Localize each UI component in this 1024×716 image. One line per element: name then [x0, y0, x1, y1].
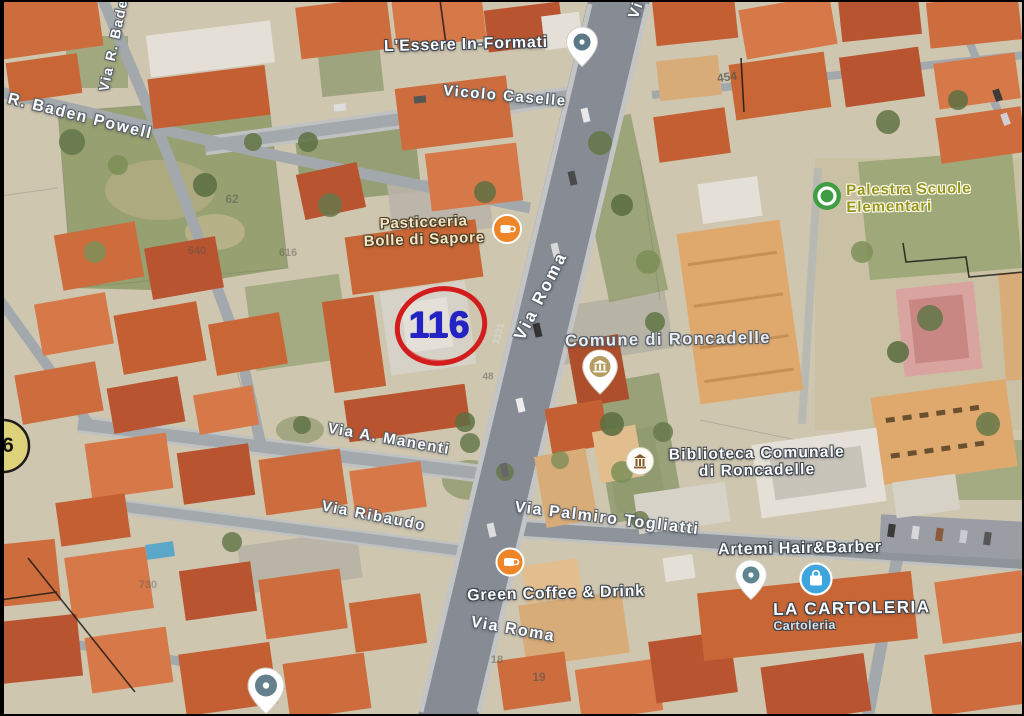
building-number: 616: [279, 247, 297, 259]
coffee-icon[interactable]: [495, 547, 525, 577]
parcel-marker-number: 116: [408, 304, 469, 346]
pastry-cafe-pin-icon[interactable]: [491, 213, 523, 245]
poi-label-line: Biblioteca Comunale: [669, 443, 845, 463]
poi-pin-icon[interactable]: [246, 667, 286, 715]
building-number: 730: [139, 579, 157, 591]
poi-label-subtitle: Cartoleria: [773, 616, 931, 633]
poi-label-biblioteca[interactable]: Biblioteca Comunale di Roncadelle: [669, 443, 846, 480]
poi-label-line: Elementari: [846, 197, 972, 216]
building-number: 454: [716, 69, 738, 86]
library-icon[interactable]: [626, 447, 654, 475]
building-number: 19: [532, 670, 545, 684]
poi-label-line: Palestra Scuole: [846, 180, 972, 199]
poi-label-palestra[interactable]: Palestra Scuole Elementari: [846, 180, 972, 216]
school-gym-circle-icon[interactable]: [812, 181, 842, 211]
poi-label-artemi-hair-barber[interactable]: Artemi Hair&Barber: [718, 539, 882, 560]
poi-label-comune-di-roncadelle[interactable]: Comune di Roncadelle: [565, 329, 771, 352]
building-number: 62: [225, 192, 238, 206]
building-number: 18: [491, 654, 503, 666]
edge-parcel-badge-number: 6: [2, 434, 14, 458]
building-number: 640: [188, 245, 206, 257]
building-number: 48: [482, 372, 493, 383]
town-hall-pin-icon[interactable]: [581, 349, 619, 395]
business-pin-icon[interactable]: [565, 26, 599, 68]
barber-pin-icon[interactable]: [734, 559, 768, 601]
map-viewport[interactable]: 454 62 640 616 730 3331 48 18 19 Via R. …: [0, 0, 1024, 716]
poi-label-la-cartoleria[interactable]: LA CARTOLERIA Cartoleria: [773, 598, 931, 633]
poi-label-line: di Roncadelle: [669, 460, 845, 480]
poi-label-pasticceria[interactable]: Pasticceria Bolle di Sapore: [363, 212, 485, 250]
poi-label-name: LA CARTOLERIA: [773, 598, 931, 618]
shopping-bag-icon[interactable]: [799, 562, 833, 596]
